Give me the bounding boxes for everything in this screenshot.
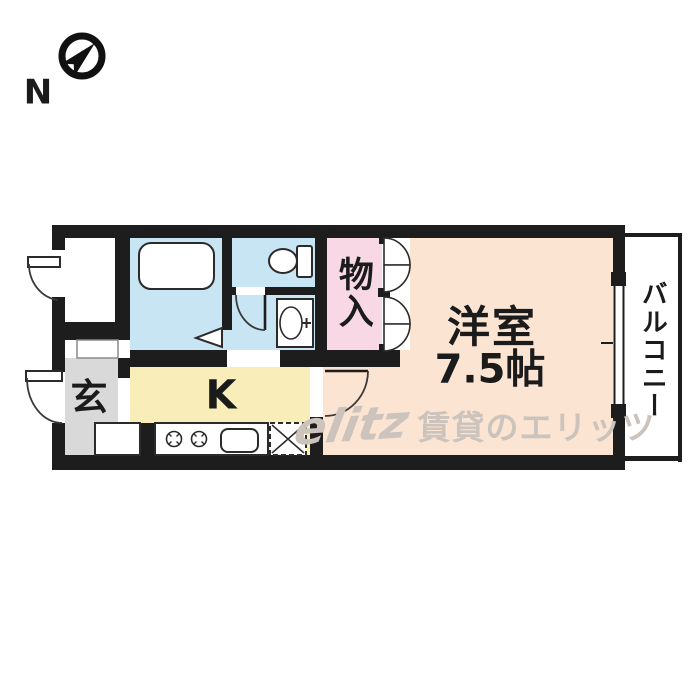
compass-icon [62,36,102,76]
bathtub [139,243,214,289]
vanity-sink [277,299,313,347]
washer-space [270,423,306,455]
kitchen-counter [155,423,268,455]
western-room-size: 7.5帖 [435,350,546,391]
shoe-cabinet-lower [95,423,140,455]
entrance-step-edge [118,378,130,423]
floor-plan-drawing [0,0,700,700]
western-room-label: 洋室 [447,307,537,351]
floor-plan: N 玄 K 物入 洋室 7.5帖 バルコニー elitz 賃貸のエリッツ [0,0,700,700]
kitchen-label: K [206,376,237,417]
entrance-label: 玄 [71,379,108,417]
balcony-label: バルコニー [639,280,666,420]
compass-north-label: N [24,76,52,111]
closet-label: 物入 [334,256,370,330]
room-storage [65,238,115,322]
shoe-cabinet-upper [77,340,118,358]
kitchen-sink [221,429,258,452]
